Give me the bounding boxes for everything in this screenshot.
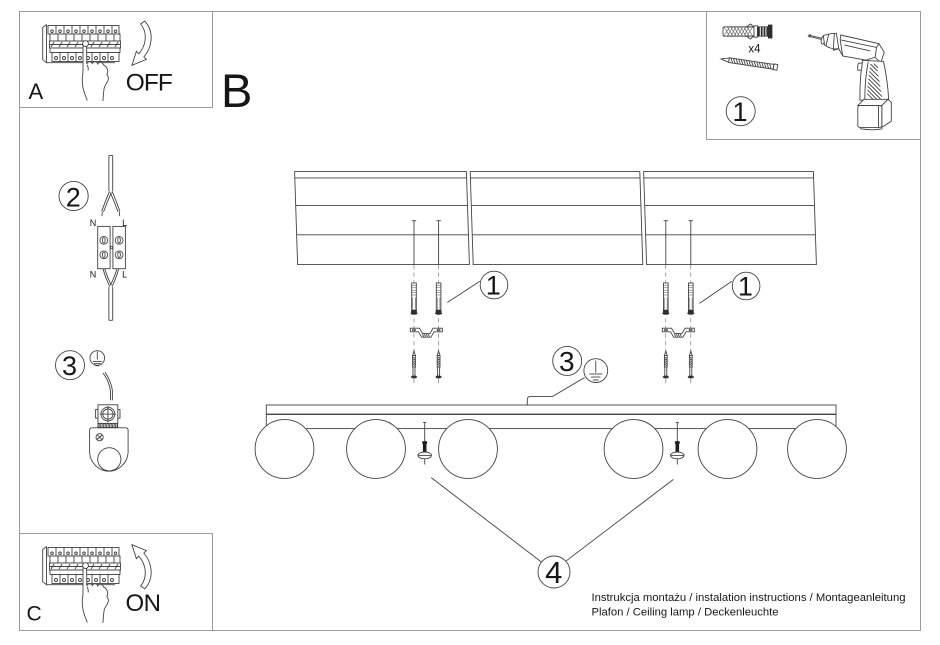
svg-text:N: N [90,218,97,228]
svg-text:x4: x4 [748,44,761,56]
svg-text:3: 3 [559,346,575,377]
svg-text:1: 1 [486,271,501,301]
svg-text:Plafon / Ceiling lamp / Decken: Plafon / Ceiling lamp / Deckenleuchte [592,606,779,618]
svg-text:1: 1 [738,272,753,302]
svg-text:L: L [122,270,127,280]
svg-text:OFF: OFF [126,70,172,97]
svg-text:B: B [221,64,252,117]
svg-text:C: C [27,602,42,625]
svg-text:4: 4 [545,555,562,590]
svg-text:N: N [90,270,97,280]
svg-text:3: 3 [62,351,77,381]
svg-text:1: 1 [732,97,747,127]
svg-text:2: 2 [66,182,81,212]
svg-text:A: A [29,79,44,104]
svg-text:Instrukcja montażu / instalati: Instrukcja montażu / instalation instruc… [592,592,906,604]
svg-text:ON: ON [126,590,161,617]
